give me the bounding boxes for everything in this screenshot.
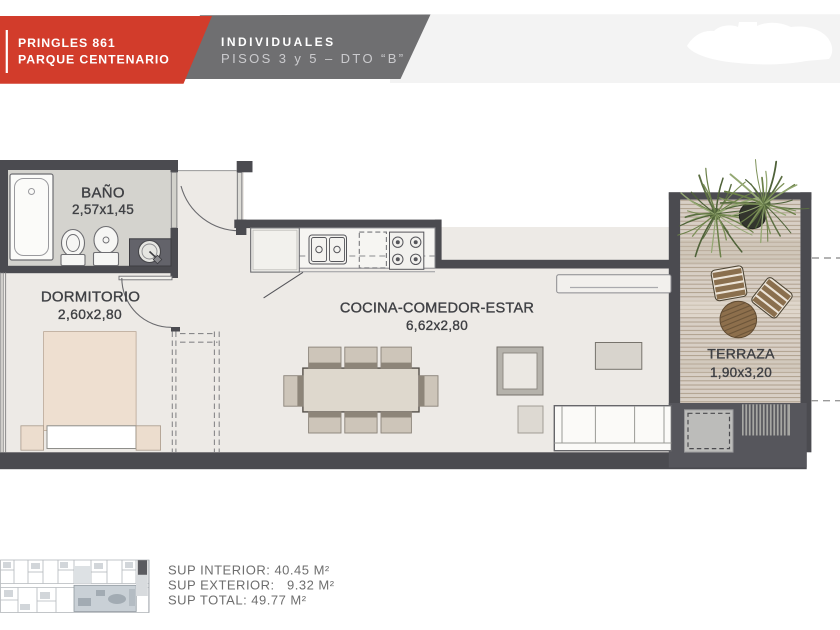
svg-text:PRINGLES 861: PRINGLES 861 — [18, 36, 116, 50]
svg-text:2,57x1,45: 2,57x1,45 — [72, 202, 134, 217]
svg-text:PISOS 3 y 5 – DTO “B”: PISOS 3 y 5 – DTO “B” — [221, 51, 406, 66]
svg-text:1,90x3,20: 1,90x3,20 — [710, 365, 772, 380]
svg-text:COCINA-COMEDOR-ESTAR: COCINA-COMEDOR-ESTAR — [340, 301, 534, 317]
svg-text:2,60x2,80: 2,60x2,80 — [58, 307, 122, 322]
svg-text:6,62x2,80: 6,62x2,80 — [406, 318, 468, 333]
svg-text:SUP TOTAL: 49.77 M²: SUP TOTAL: 49.77 M² — [168, 593, 307, 608]
svg-text:DORMITORIO: DORMITORIO — [41, 289, 140, 306]
svg-text:SUP INTERIOR: 40.45 M²: SUP INTERIOR: 40.45 M² — [168, 563, 330, 578]
svg-text:INDIVIDUALES: INDIVIDUALES — [221, 35, 336, 49]
svg-text:TERRAZA: TERRAZA — [707, 346, 775, 362]
svg-text:SUP EXTERIOR: 9.32 M²: SUP EXTERIOR: 9.32 M² — [168, 578, 335, 593]
svg-text:PARQUE CENTENARIO: PARQUE CENTENARIO — [18, 53, 170, 67]
svg-text:BAÑO: BAÑO — [81, 185, 125, 202]
